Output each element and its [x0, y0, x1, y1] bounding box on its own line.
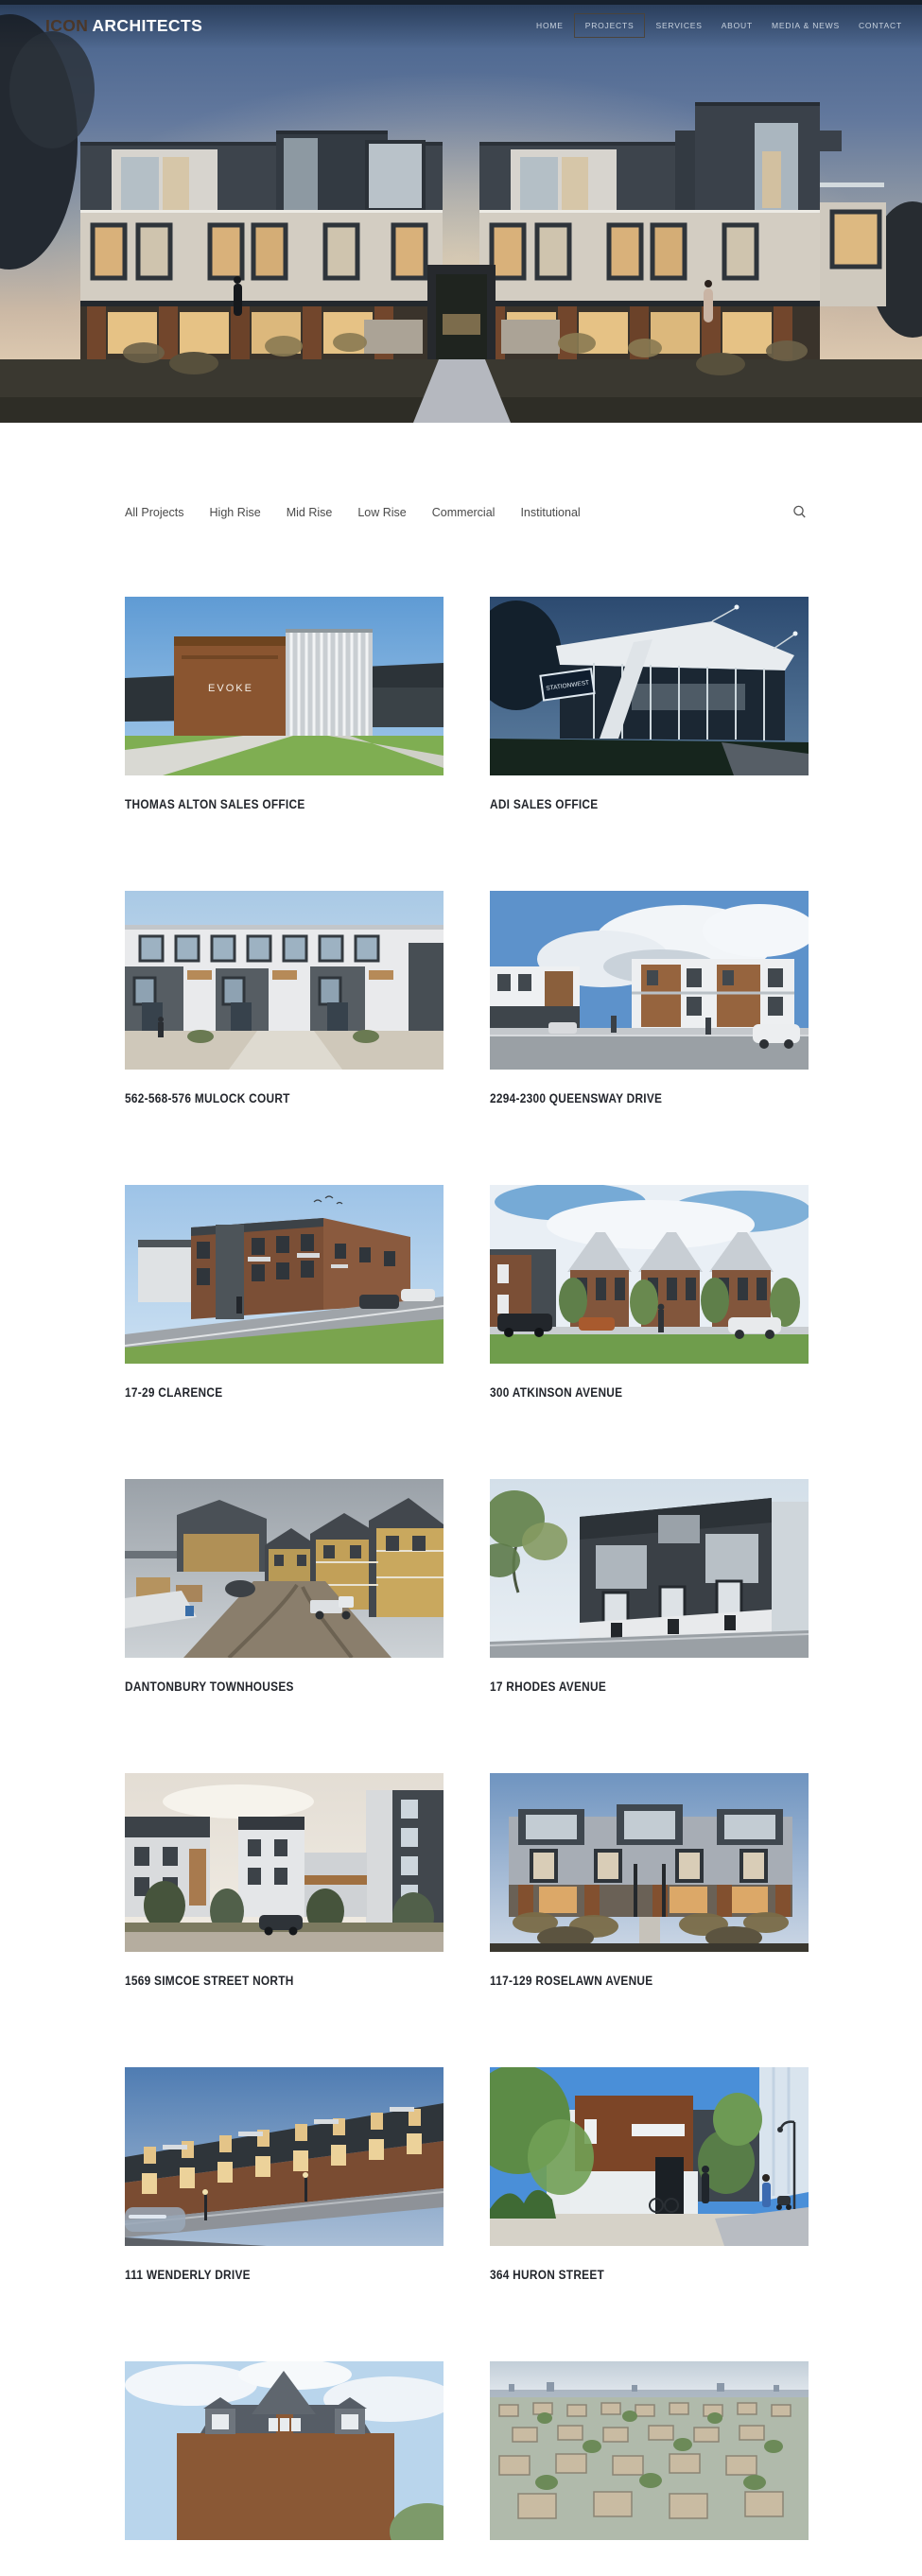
- project-card[interactable]: EVOKE THOMAS ALTON SALES OFFICE: [125, 597, 444, 811]
- project-title[interactable]: 562-568-576 MULOCK COURT: [125, 1092, 406, 1105]
- project-image-dantonbury[interactable]: [125, 1479, 444, 1658]
- filter-institutional[interactable]: Institutional: [520, 506, 580, 519]
- project-card[interactable]: STATIONWEST ADI SALES OFFICE: [490, 597, 809, 811]
- project-title: [490, 2563, 771, 2576]
- filter-mid-rise[interactable]: Mid Rise: [287, 506, 333, 519]
- project-image-wenderly[interactable]: [125, 2067, 444, 2246]
- project-card[interactable]: 17 RHODES AVENUE: [490, 1479, 809, 1694]
- project-card[interactable]: 117-129 ROSELAWN AVENUE: [490, 1773, 809, 1988]
- filter-toolbar: All Projects High Rise Mid Rise Low Rise…: [125, 423, 809, 521]
- project-card[interactable]: [125, 2361, 444, 2576]
- search-button[interactable]: [792, 504, 809, 521]
- site-header: ICONARCHITECTS HOME PROJECTS SERVICES AB…: [0, 5, 922, 46]
- project-image-huron[interactable]: [490, 2067, 809, 2246]
- project-image-aerial-development[interactable]: [490, 2361, 809, 2540]
- evoke-sign-text: EVOKE: [208, 683, 253, 694]
- project-title[interactable]: 117-129 ROSELAWN AVENUE: [490, 1975, 771, 1988]
- search-icon: [792, 504, 809, 521]
- logo[interactable]: ICONARCHITECTS: [45, 16, 202, 36]
- project-title[interactable]: THOMAS ALTON SALES OFFICE: [125, 798, 406, 811]
- project-card[interactable]: 300 ATKINSON AVENUE: [490, 1185, 809, 1400]
- project-title[interactable]: 364 HURON STREET: [490, 2269, 771, 2282]
- project-title[interactable]: 1569 SIMCOE STREET NORTH: [125, 1975, 406, 1988]
- nav-services[interactable]: SERVICES: [647, 14, 710, 37]
- nav-projects[interactable]: PROJECTS: [574, 13, 646, 38]
- project-card[interactable]: [490, 2361, 809, 2576]
- filter-commercial[interactable]: Commercial: [432, 506, 496, 519]
- project-title[interactable]: 300 ATKINSON AVENUE: [490, 1386, 771, 1400]
- filter-high-rise[interactable]: High Rise: [210, 506, 261, 519]
- project-card[interactable]: 111 WENDERLY DRIVE: [125, 2067, 444, 2282]
- project-image-roselawn[interactable]: [490, 1773, 809, 1952]
- project-image-rhodes[interactable]: [490, 1479, 809, 1658]
- project-image-atkinson[interactable]: [490, 1185, 809, 1364]
- project-image-clarence[interactable]: [125, 1185, 444, 1364]
- project-card[interactable]: 562-568-576 MULOCK COURT: [125, 891, 444, 1105]
- logo-secondary: ARCHITECTS: [92, 16, 202, 35]
- project-card[interactable]: DANTONBURY TOWNHOUSES: [125, 1479, 444, 1694]
- filter-all-projects[interactable]: All Projects: [125, 506, 184, 519]
- project-title[interactable]: 111 WENDERLY DRIVE: [125, 2269, 406, 2282]
- project-image-queensway[interactable]: [490, 891, 809, 1070]
- project-card[interactable]: 2294-2300 QUEENSWAY DRIVE: [490, 891, 809, 1105]
- project-title[interactable]: 17-29 CLARENCE: [125, 1386, 406, 1400]
- filter-low-rise[interactable]: Low Rise: [357, 506, 406, 519]
- project-title[interactable]: 17 RHODES AVENUE: [490, 1680, 771, 1694]
- project-card[interactable]: 1569 SIMCOE STREET NORTH: [125, 1773, 444, 1988]
- project-grid: EVOKE THOMAS ALTON SALES OFFICE: [125, 521, 809, 2576]
- nav-media-news[interactable]: MEDIA & NEWS: [763, 14, 848, 37]
- project-title: [125, 2563, 406, 2576]
- hero-section: [0, 0, 922, 423]
- project-title[interactable]: 2294-2300 QUEENSWAY DRIVE: [490, 1092, 771, 1105]
- nav-home[interactable]: HOME: [528, 14, 572, 37]
- project-image-thomas-alton[interactable]: EVOKE: [125, 597, 444, 775]
- project-title[interactable]: ADI SALES OFFICE: [490, 798, 771, 811]
- top-strip: [0, 0, 922, 5]
- project-image-simcoe[interactable]: [125, 1773, 444, 1952]
- project-filters: All Projects High Rise Mid Rise Low Rise…: [125, 506, 581, 519]
- project-image-adi[interactable]: STATIONWEST: [490, 597, 809, 775]
- project-card[interactable]: 17-29 CLARENCE: [125, 1185, 444, 1400]
- project-image-heritage-house[interactable]: [125, 2361, 444, 2540]
- hero-image: [0, 0, 922, 423]
- logo-primary: ICON: [45, 16, 88, 35]
- main-nav: HOME PROJECTS SERVICES ABOUT MEDIA & NEW…: [526, 13, 911, 38]
- project-image-mulock[interactable]: [125, 891, 444, 1070]
- project-title[interactable]: DANTONBURY TOWNHOUSES: [125, 1680, 406, 1694]
- nav-about[interactable]: ABOUT: [713, 14, 761, 37]
- nav-contact[interactable]: CONTACT: [850, 14, 911, 37]
- project-card[interactable]: 364 HURON STREET: [490, 2067, 809, 2282]
